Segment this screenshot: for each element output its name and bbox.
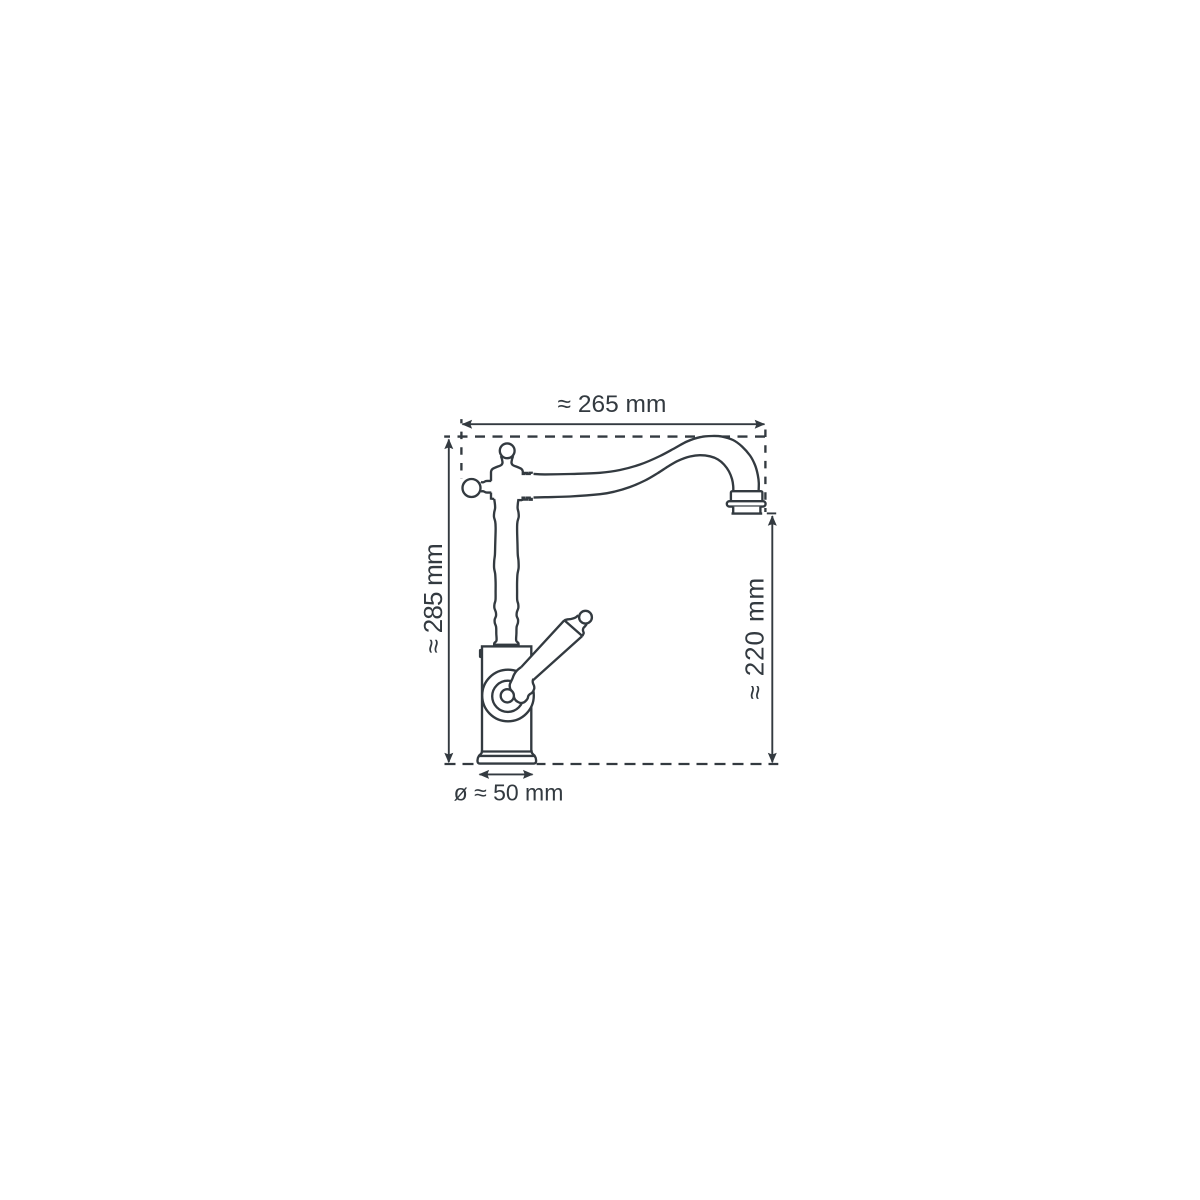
svg-text:≈ 265 mm: ≈ 265 mm — [558, 391, 667, 418]
svg-text:≈ 285 mm: ≈ 285 mm — [418, 544, 448, 653]
svg-text:≈ 220 mm: ≈ 220 mm — [739, 577, 769, 700]
svg-text:ø ≈ 50 mm: ø ≈ 50 mm — [454, 780, 564, 806]
